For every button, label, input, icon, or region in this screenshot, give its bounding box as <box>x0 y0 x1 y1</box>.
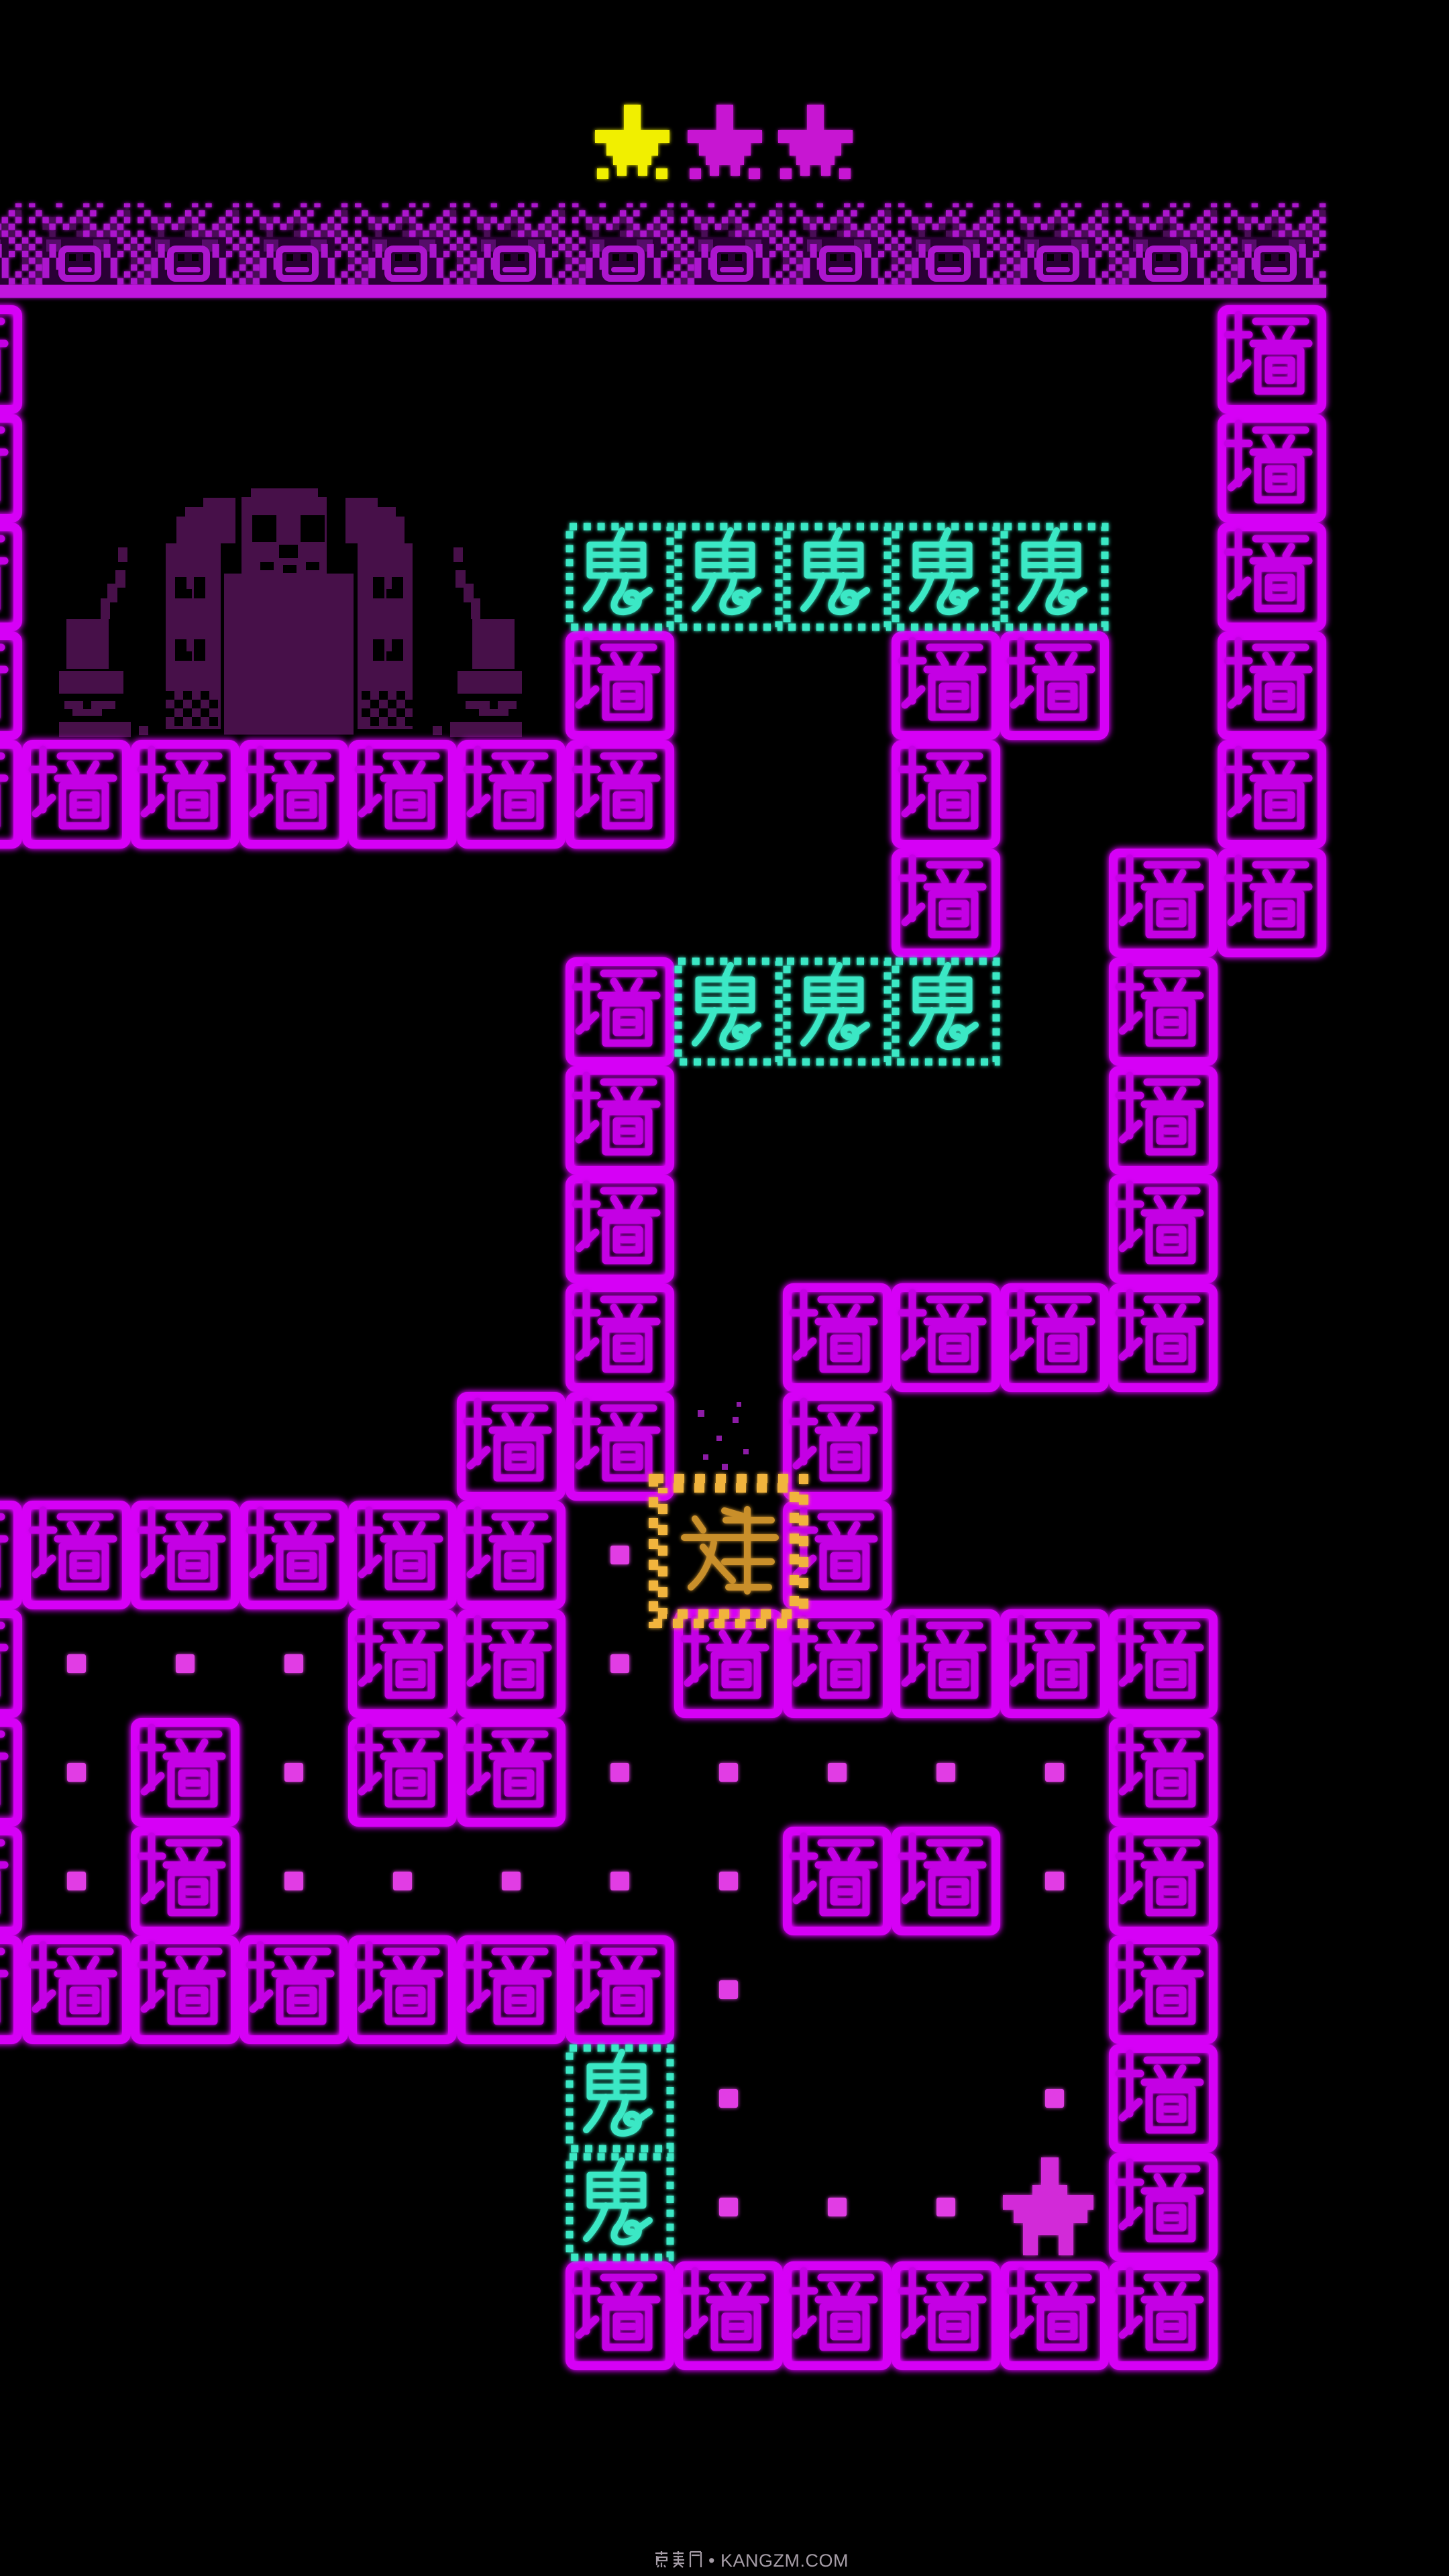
svg-text:• KANGZM.COM: • KANGZM.COM <box>708 2551 849 2571</box>
